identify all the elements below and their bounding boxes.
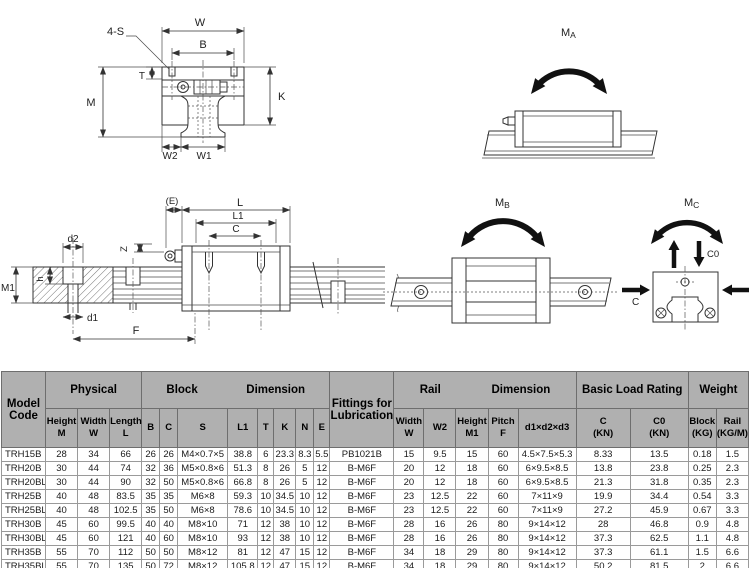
model-code-cell: TRH25B [2, 490, 46, 504]
spec-cell: 40 [142, 518, 160, 532]
spec-cell: 12 [258, 518, 274, 532]
spec-cell: 1.1 [688, 532, 716, 546]
force-c-label: C [632, 297, 639, 308]
spec-cell: 12 [314, 476, 330, 490]
model-code-cell: TRH35B [2, 546, 46, 560]
spec-cell: 60 [488, 490, 518, 504]
spec-cell: 66.8 [228, 476, 258, 490]
spec-cell: 1.5 [716, 448, 748, 462]
spec-cell: 16 [424, 518, 456, 532]
spec-cell: 28 [576, 518, 630, 532]
spec-cell: 30 [46, 462, 78, 476]
group-header-weight: Weight [688, 372, 748, 409]
spec-cell: 8 [258, 476, 274, 490]
moment-b-diagram: MB [383, 197, 617, 323]
col-header-b: B [142, 409, 160, 448]
spec-cell: 0.18 [688, 448, 716, 462]
spec-cell: 34.5 [274, 490, 296, 504]
dim-label-m1: M1 [1, 283, 15, 294]
spec-cell: 66 [110, 448, 142, 462]
spec-cell: 50 [142, 546, 160, 560]
dim-label-f: F [133, 325, 140, 337]
group-header-rail-dim: Dimension [491, 384, 550, 396]
model-code-cell: TRH30B [2, 518, 46, 532]
spec-cell: 10 [296, 518, 314, 532]
spec-cell: M5×0.8×6 [178, 462, 228, 476]
side-view-drawing: d2 h M1 d1 F Z (E) L [1, 196, 399, 344]
spec-cell: 9×14×12 [518, 546, 576, 560]
force-c0-label: C0 [707, 249, 719, 260]
table-row: TRH35B55701125050M8×128112471512B-M6F341… [2, 546, 749, 560]
spec-cell: 15 [296, 546, 314, 560]
spec-cell: 28 [394, 532, 424, 546]
model-code-cell: TRH20B [2, 462, 46, 476]
spec-cell: 51.3 [228, 462, 258, 476]
col-header-c: C [160, 409, 178, 448]
spec-cell: 8.3 [296, 448, 314, 462]
spec-cell: 83.5 [110, 490, 142, 504]
col-header-n: N [296, 409, 314, 448]
spec-cell: 5 [296, 476, 314, 490]
spec-cell: 22 [456, 504, 488, 518]
spec-cell: 93 [228, 532, 258, 546]
spec-cell: 15 [394, 448, 424, 462]
moment-b-arrow [470, 221, 536, 236]
spec-cell: 45.9 [630, 504, 688, 518]
spec-cell: 12 [258, 546, 274, 560]
spec-cell: 23 [394, 504, 424, 518]
spec-cell: 60 [488, 504, 518, 518]
spec-cell: 2.3 [716, 462, 748, 476]
technical-drawings: 4-S W B T M K W2 W1 [0, 0, 750, 371]
spec-cell: 70 [78, 546, 110, 560]
spec-cell: 80 [488, 518, 518, 532]
spec-table-body: TRH15B2834662626M4×0.7×538.8623.38.35.5P… [2, 448, 749, 568]
col-header-e: E [314, 409, 330, 448]
col-header-width-w: Width W [78, 409, 110, 448]
spec-cell: 20 [394, 476, 424, 490]
spec-cell: 7×11×9 [518, 490, 576, 504]
spec-cell: 0.9 [688, 518, 716, 532]
spec-cell: 55 [46, 560, 78, 568]
spec-cell: 22 [456, 490, 488, 504]
spec-cell: 34.4 [630, 490, 688, 504]
group-header-rail: Rail [420, 384, 441, 396]
spec-cell: 81 [228, 546, 258, 560]
spec-cell: 12 [314, 546, 330, 560]
spec-cell: 90 [110, 476, 142, 490]
col-header-pitch-f: Pitch F [488, 409, 518, 448]
spec-cell: 2 [688, 560, 716, 568]
spec-cell: 12 [314, 532, 330, 546]
spec-cell: 78.6 [228, 504, 258, 518]
spec-cell: 26 [274, 476, 296, 490]
dim-label-z: Z [119, 246, 130, 252]
spec-cell: 48 [78, 504, 110, 518]
spec-cell: 40 [46, 490, 78, 504]
spec-cell: 6×9.5×8.5 [518, 476, 576, 490]
col-header-rail-width-w: Width W [394, 409, 424, 448]
spec-cell: 80 [488, 560, 518, 568]
spec-cell: 59.3 [228, 490, 258, 504]
spec-cell: 121 [110, 532, 142, 546]
spec-cell: 10 [296, 490, 314, 504]
spec-cell: 29 [456, 546, 488, 560]
table-group-header-row: Model Code Physical Block Dimension Fitt… [2, 372, 749, 409]
table-row: TRH30B456099.54040M8×107112381012B-M6F28… [2, 518, 749, 532]
spec-cell: 40 [142, 532, 160, 546]
spec-cell: M6×8 [178, 504, 228, 518]
spec-cell: 5 [296, 462, 314, 476]
spec-cell: 26 [456, 532, 488, 546]
spec-cell: 60 [160, 532, 178, 546]
spec-cell: M6×8 [178, 490, 228, 504]
spec-cell: 27.2 [576, 504, 630, 518]
col-header-t: T [258, 409, 274, 448]
dim-label-w2: W2 [163, 151, 178, 162]
group-header-block-dimension: Block Dimension [142, 372, 330, 409]
spec-cell: 12 [424, 462, 456, 476]
spec-cell: 44 [78, 476, 110, 490]
spec-cell: 12 [314, 518, 330, 532]
spec-cell: 3.3 [716, 504, 748, 518]
group-header-rail-dimension: Rail Dimension [394, 372, 576, 409]
spec-cell: 5.5 [314, 448, 330, 462]
spec-cell: 37.3 [576, 546, 630, 560]
spec-cell: 55 [46, 546, 78, 560]
table-row: TRH25B404883.53535M6×859.31034.51012B-M6… [2, 490, 749, 504]
col-header-c0-kn: C0 (KN) [630, 409, 688, 448]
spec-cell: 60 [488, 462, 518, 476]
spec-cell: 10 [258, 490, 274, 504]
spec-cell: 7×11×9 [518, 504, 576, 518]
spec-cell: 12 [258, 532, 274, 546]
spec-cell: 112 [110, 546, 142, 560]
model-code-cell: TRH15B [2, 448, 46, 462]
table-row: TRH35BL55701355072M8×12105.812471512B-M6… [2, 560, 749, 568]
spec-cell: M5×0.8×6 [178, 476, 228, 490]
spec-cell: 60 [488, 476, 518, 490]
spec-cell: 10 [296, 504, 314, 518]
spec-cell: B-M6F [330, 560, 394, 568]
spec-cell: 12 [314, 462, 330, 476]
dim-label-d1: d1 [87, 313, 99, 324]
moment-b-label: MB [495, 197, 510, 210]
spec-cell: M4×0.7×5 [178, 448, 228, 462]
spec-cell: 46.8 [630, 518, 688, 532]
spec-cell: 15 [456, 448, 488, 462]
group-header-block: Block [166, 384, 197, 396]
spec-cell: 71 [228, 518, 258, 532]
spec-cell: 44 [78, 462, 110, 476]
spec-cell: 13.8 [576, 462, 630, 476]
spec-cell: 28 [394, 518, 424, 532]
col-header-model-code: Model Code [2, 372, 46, 448]
spec-cell: 4.8 [716, 518, 748, 532]
spec-cell: 12 [424, 476, 456, 490]
spec-cell: 0.35 [688, 476, 716, 490]
spec-cell: 9×14×12 [518, 532, 576, 546]
spec-cell: M8×10 [178, 518, 228, 532]
spec-cell: 0.54 [688, 490, 716, 504]
spec-cell: 23.3 [274, 448, 296, 462]
spec-cell: B-M6F [330, 532, 394, 546]
spec-cell: M8×12 [178, 546, 228, 560]
spec-cell: 29 [456, 560, 488, 568]
spec-cell: 0.67 [688, 504, 716, 518]
col-header-w2: W2 [424, 409, 456, 448]
spec-cell: 35 [142, 504, 160, 518]
col-header-s: S [178, 409, 228, 448]
col-header-rail-kgm: Rail (KG/M) [716, 409, 748, 448]
spec-cell: 47 [274, 546, 296, 560]
spec-cell: 105.8 [228, 560, 258, 568]
spec-cell: 36 [160, 462, 178, 476]
spec-cell: 35 [142, 490, 160, 504]
spec-cell: 45 [46, 518, 78, 532]
spec-cell: 19.9 [576, 490, 630, 504]
spec-cell: 34 [394, 546, 424, 560]
spec-cell: 38.8 [228, 448, 258, 462]
spec-cell: 4.5×7.5×5.3 [518, 448, 576, 462]
moment-a-diagram: MA [482, 27, 657, 158]
spec-cell: 74 [110, 462, 142, 476]
col-header-d1d2d3: d1×d2×d3 [518, 409, 576, 448]
spec-cell: 12 [258, 560, 274, 568]
spec-cell: 15 [296, 560, 314, 568]
spec-cell: 12 [314, 560, 330, 568]
col-header-c-kn: C (KN) [576, 409, 630, 448]
dim-label-m: M [86, 97, 95, 109]
spec-cell: 9.5 [424, 448, 456, 462]
spec-cell: B-M6F [330, 476, 394, 490]
spec-cell: M8×10 [178, 532, 228, 546]
spec-cell: 72 [160, 560, 178, 568]
spec-cell: 12.5 [424, 490, 456, 504]
dim-label-b: B [199, 39, 206, 51]
spec-cell: M8×12 [178, 560, 228, 568]
spec-cell: 6 [258, 448, 274, 462]
model-code-cell: TRH30BL [2, 532, 46, 546]
spec-cell: 38 [274, 532, 296, 546]
table-row: TRH30BL45601214060M8×109312381012B-M6F28… [2, 532, 749, 546]
moment-a-label: MA [561, 27, 576, 40]
moment-c-diagram: MC C0 C [622, 197, 749, 330]
spec-cell: 6.6 [716, 560, 748, 568]
spec-cell: 48 [78, 490, 110, 504]
spec-cell: 31.8 [630, 476, 688, 490]
spec-cell: 13.5 [630, 448, 688, 462]
spec-cell: 3.3 [716, 490, 748, 504]
col-header-height-m: Height M [46, 409, 78, 448]
model-code-cell: TRH25BL [2, 504, 46, 518]
spec-cell: 26 [142, 448, 160, 462]
spec-cell: 34 [394, 560, 424, 568]
spec-cell: 12.5 [424, 504, 456, 518]
moment-c-label: MC [684, 197, 699, 210]
spec-cell: B-M6F [330, 462, 394, 476]
spec-cell: 23.8 [630, 462, 688, 476]
spec-cell: 32 [142, 462, 160, 476]
spec-cell: 50 [160, 476, 178, 490]
spec-sheet: 4-S W B T M K W2 W1 [0, 0, 750, 568]
spec-cell: 23 [394, 490, 424, 504]
model-code-cell: TRH20BL [2, 476, 46, 490]
spec-cell: 4.8 [716, 532, 748, 546]
moment-a-arrow [540, 71, 598, 83]
front-view-drawing: 4-S W B T M K W2 W1 [86, 17, 286, 162]
dim-label-d2: d2 [67, 234, 79, 245]
spec-cell: 0.25 [688, 462, 716, 476]
table-row: TRH20B3044743236M5×0.8×651.3826512B-M6F2… [2, 462, 749, 476]
spec-cell: B-M6F [330, 518, 394, 532]
table-row: TRH15B2834662626M4×0.7×538.8623.38.35.5P… [2, 448, 749, 462]
spec-cell: 8 [258, 462, 274, 476]
spec-cell: 37.3 [576, 532, 630, 546]
spec-cell: 30 [46, 476, 78, 490]
spec-cell: 60 [78, 518, 110, 532]
spec-cell: 16 [424, 532, 456, 546]
spec-cell: 20 [394, 462, 424, 476]
spec-cell: 80 [488, 532, 518, 546]
spec-cell: 18 [456, 462, 488, 476]
table-row: TRH25BL4048102.53550M6×878.61034.51012B-… [2, 504, 749, 518]
group-header-physical: Physical [46, 372, 142, 409]
dim-label-w: W [195, 17, 206, 29]
spec-cell: 62.5 [630, 532, 688, 546]
spec-cell: 50 [160, 546, 178, 560]
spec-cell: 34.5 [274, 504, 296, 518]
spec-cell: 50.2 [576, 560, 630, 568]
spec-cell: 135 [110, 560, 142, 568]
spec-cell: 8.33 [576, 448, 630, 462]
dim-label-e: (E) [166, 196, 179, 207]
spec-cell: 60 [488, 448, 518, 462]
spec-cell: 10 [258, 504, 274, 518]
moment-c-arrow [659, 223, 715, 234]
spec-cell: 28 [46, 448, 78, 462]
dim-label-l1: L1 [232, 211, 244, 222]
spec-cell: 9×14×12 [518, 518, 576, 532]
spec-cell: 40 [160, 518, 178, 532]
dim-label-c: C [232, 224, 239, 235]
col-header-block-kg: Block (KG) [688, 409, 716, 448]
spec-cell: 80 [488, 546, 518, 560]
spec-cell: 61.1 [630, 546, 688, 560]
col-header-height-m1: Height M1 [456, 409, 488, 448]
spec-cell: 12 [314, 490, 330, 504]
spec-cell: 47 [274, 560, 296, 568]
table-row: TRH20BL3044903250M5×0.8×666.8826512B-M6F… [2, 476, 749, 490]
spec-cell: 12 [314, 504, 330, 518]
spec-cell: 60 [78, 532, 110, 546]
model-code-cell: TRH35BL [2, 560, 46, 568]
spec-cell: B-M6F [330, 490, 394, 504]
spec-table: Model Code Physical Block Dimension Fitt… [1, 371, 749, 568]
spec-cell: 18 [456, 476, 488, 490]
col-header-lubrication: Fittings for Lubrication [330, 372, 394, 448]
spec-cell: B-M6F [330, 504, 394, 518]
spec-cell: 26 [274, 462, 296, 476]
spec-cell: 45 [46, 532, 78, 546]
spec-cell: 50 [142, 560, 160, 568]
spec-cell: 10 [296, 532, 314, 546]
dim-label-4s: 4-S [107, 26, 124, 38]
spec-cell: 1.5 [688, 546, 716, 560]
spec-cell: 81.5 [630, 560, 688, 568]
spec-cell: 18 [424, 560, 456, 568]
spec-cell: 70 [78, 560, 110, 568]
dim-label-t: T [139, 71, 145, 82]
spec-cell: 26 [160, 448, 178, 462]
spec-cell: PB1021B [330, 448, 394, 462]
spec-cell: 32 [142, 476, 160, 490]
spec-cell: 38 [274, 518, 296, 532]
spec-cell: 26 [456, 518, 488, 532]
group-header-basic-load-rating: Basic Load Rating [576, 372, 688, 409]
spec-cell: 9×14×12 [518, 560, 576, 568]
spec-cell: 40 [46, 504, 78, 518]
spec-cell: 102.5 [110, 504, 142, 518]
spec-cell: 6.6 [716, 546, 748, 560]
spec-cell: 35 [160, 490, 178, 504]
col-header-length-l: Length L [110, 409, 142, 448]
dim-label-k: K [278, 91, 286, 103]
spec-cell: 18 [424, 546, 456, 560]
spec-cell: B-M6F [330, 546, 394, 560]
dim-label-l: L [237, 197, 243, 209]
col-header-k: K [274, 409, 296, 448]
dim-label-w1: W1 [197, 151, 212, 162]
spec-cell: 6×9.5×8.5 [518, 462, 576, 476]
spec-cell: 50 [160, 504, 178, 518]
spec-cell: 2.3 [716, 476, 748, 490]
spec-cell: 34 [78, 448, 110, 462]
group-header-block-dim: Dimension [246, 384, 305, 396]
dim-label-h: h [35, 276, 46, 281]
spec-cell: 99.5 [110, 518, 142, 532]
spec-cell: 21.3 [576, 476, 630, 490]
col-header-l1: L1 [228, 409, 258, 448]
